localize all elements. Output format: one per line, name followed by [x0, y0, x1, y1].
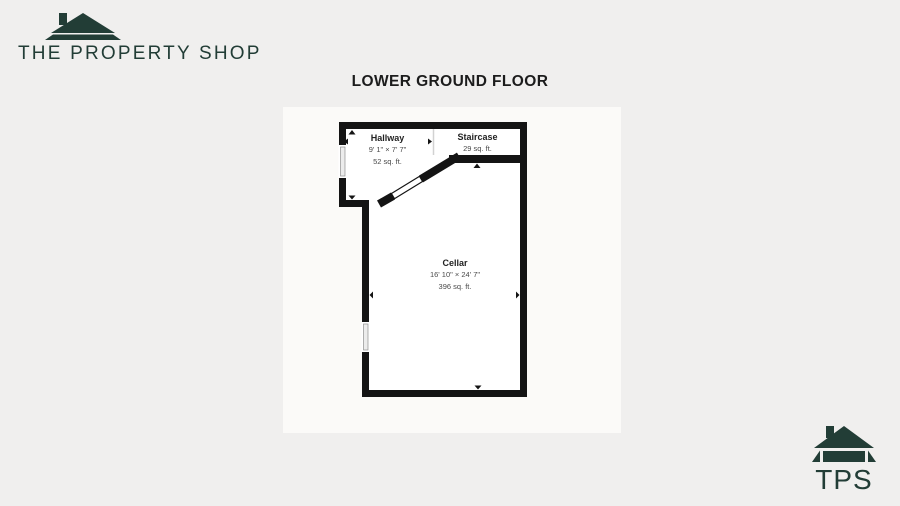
window-cellar [362, 322, 370, 352]
room-dimensions: 16' 10" × 24' 7" [395, 269, 515, 281]
tps-logo: TPS [808, 424, 880, 494]
room-name: Hallway [345, 132, 430, 144]
tps-house-icon [812, 424, 876, 464]
room-name: Staircase [435, 131, 520, 143]
brand-logo: THE PROPERTY SHOP [18, 10, 262, 65]
room-area: 52 sq. ft. [345, 156, 430, 168]
house-roof-icon [45, 10, 121, 40]
room-area: 29 sq. ft. [435, 143, 520, 155]
page-title: LOWER GROUND FLOOR [0, 73, 900, 91]
page: THE PROPERTY SHOP LOWER GROUND FLOOR [0, 0, 900, 506]
room-name: Cellar [395, 257, 515, 269]
room-area: 396 sq. ft. [395, 281, 515, 293]
brand-name: THE PROPERTY SHOP [18, 43, 262, 65]
room-dimensions: 9' 1" × 7' 7" [345, 144, 430, 156]
tps-text: TPS [808, 466, 880, 494]
room-label-hallway: Hallway 9' 1" × 7' 7" 52 sq. ft. [345, 132, 430, 168]
room-label-staircase: Staircase 29 sq. ft. [435, 131, 520, 155]
floorplan-card: Hallway 9' 1" × 7' 7" 52 sq. ft. Stairca… [283, 107, 621, 433]
room-label-cellar: Cellar 16' 10" × 24' 7" 396 sq. ft. [395, 257, 515, 293]
